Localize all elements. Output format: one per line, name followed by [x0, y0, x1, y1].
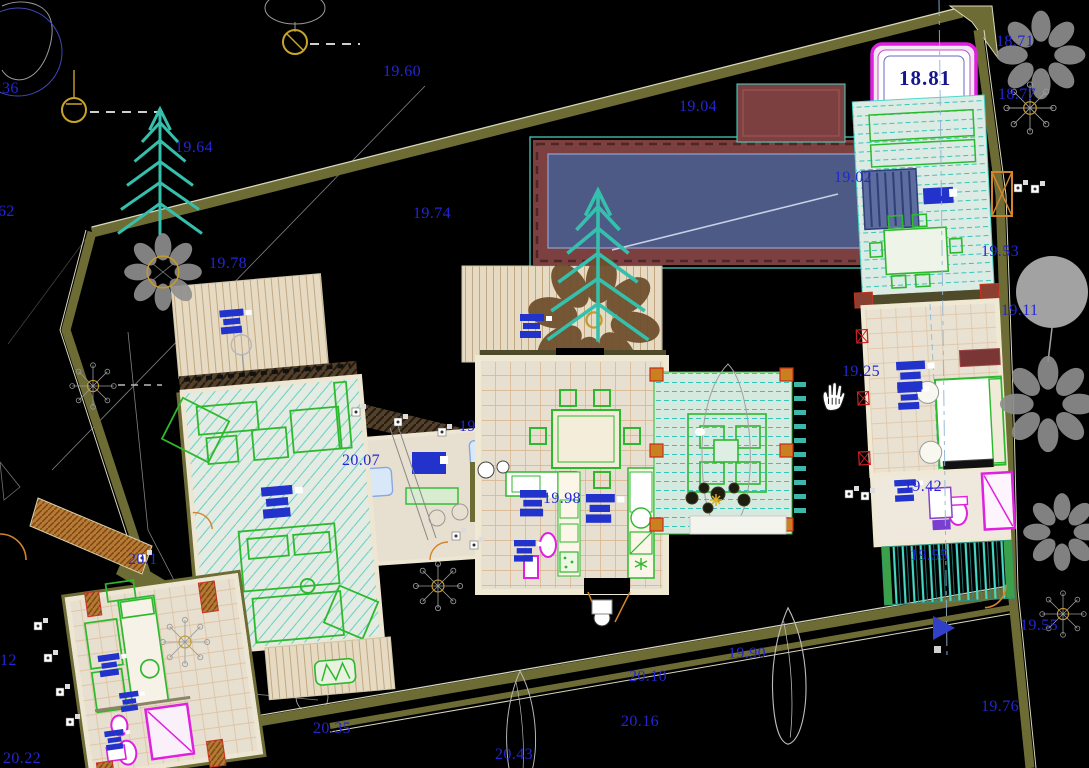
washbasin	[929, 487, 953, 518]
upper-terrace	[171, 274, 328, 379]
sink	[631, 508, 651, 528]
dandelion-tree	[70, 363, 116, 409]
round-tree	[1016, 256, 1088, 328]
guest-suite	[62, 565, 266, 768]
fan-tree	[124, 233, 202, 311]
south-pergola	[882, 540, 1015, 605]
dandelion-tree	[160, 617, 209, 666]
dandelion-tree	[413, 561, 462, 610]
cad-viewport[interactable]: 366219.6019.0419.6419.7419.7819.0218.711…	[0, 0, 1089, 768]
dandelion-tree	[1040, 591, 1086, 637]
planter	[314, 658, 356, 685]
pool-plant-box	[737, 84, 845, 142]
pan-hand-cursor	[818, 380, 848, 412]
bathroom	[872, 468, 1015, 545]
dandelion-tree	[1004, 82, 1056, 134]
site-plan-drawing	[0, 0, 1089, 768]
pergola-deck	[650, 364, 806, 534]
